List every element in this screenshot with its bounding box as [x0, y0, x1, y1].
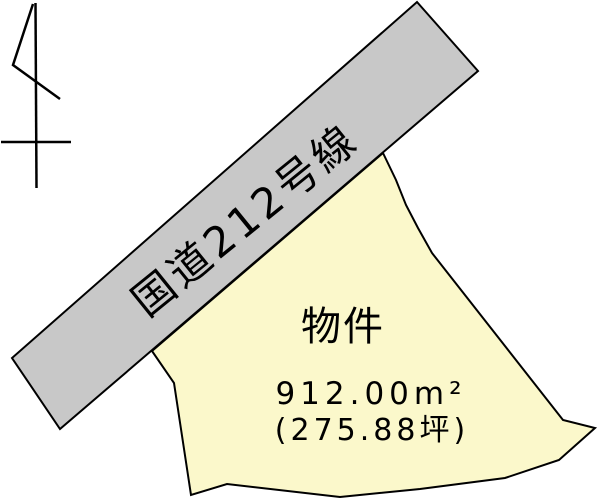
site-plan-canvas: 国道212号線 物件 912.00m² (275.88坪) [0, 0, 600, 500]
parcel-area-tsubo: (275.88坪) [275, 413, 469, 448]
parcel-label: 物件 [301, 304, 385, 350]
site-plan-drawing: 国道212号線 物件 912.00m² (275.88坪) [0, 0, 600, 500]
north-arrow-pole [36, 3, 37, 188]
parcel-area-m2: 912.00m² [275, 376, 466, 412]
north-arrow-icon [1, 3, 71, 188]
